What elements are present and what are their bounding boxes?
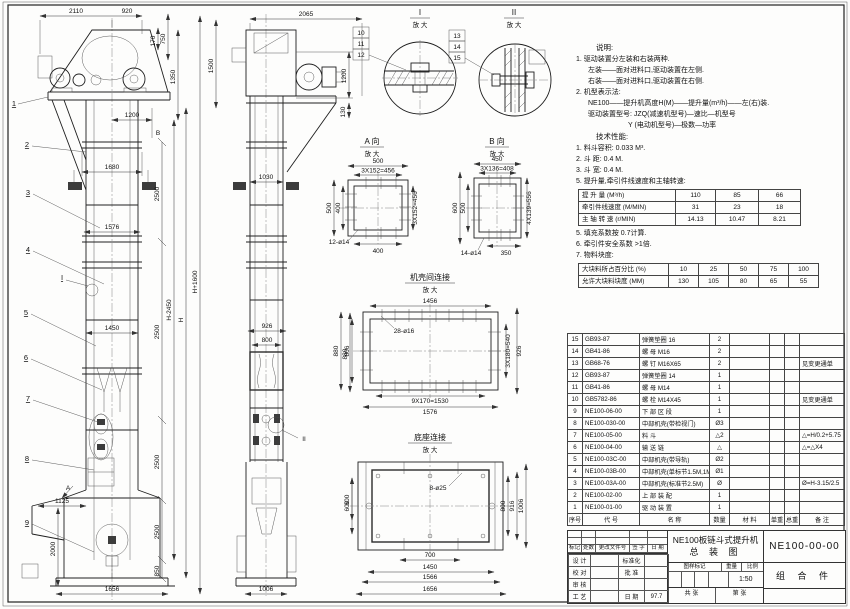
- table-cell: [785, 502, 800, 514]
- view-title: B 向: [489, 136, 505, 146]
- table-cell: [730, 334, 770, 346]
- dimension-label: 1566: [423, 574, 438, 581]
- table-cell: 2: [568, 490, 583, 502]
- balloon-number: 7: [26, 394, 30, 403]
- table-cell: △2: [710, 430, 730, 442]
- table-cell: 中部机壳(带导轨): [640, 454, 710, 466]
- dimension-label: 9X170=1530: [411, 398, 448, 405]
- dimension-label: 800: [500, 500, 507, 511]
- title-block-right: NE100-00-00 组 合 件: [764, 531, 845, 603]
- table-row: 3NE100-03A-00中部机壳(标准节2.5M)ØØ=H-3.15/2.5: [568, 478, 845, 490]
- table-cell: [730, 490, 770, 502]
- table-cell: △=H/0.2+5.75: [800, 430, 845, 442]
- column-header: 单重: [770, 514, 785, 526]
- view-title: 底座连接: [414, 432, 446, 442]
- dimension-label: 916: [509, 500, 516, 511]
- table-row: 2NE100-02-00上 部 装 配1: [568, 490, 845, 502]
- table-cell: Ø3: [710, 418, 730, 430]
- table-cell: 10: [669, 264, 699, 276]
- table-cell: [785, 346, 800, 358]
- sheet-count-label: 共 张: [668, 588, 716, 603]
- dimension-label: 1576: [105, 224, 120, 231]
- dimension-label: 500: [460, 202, 467, 213]
- table-cell: [591, 555, 619, 567]
- table-cell: 2: [710, 358, 730, 370]
- detail-mark-i: I: [61, 273, 63, 282]
- dimension-label: 2500: [154, 524, 161, 539]
- table-cell: [730, 466, 770, 478]
- table-cell: 8.21: [759, 214, 801, 226]
- table-cell: GB93-87: [583, 370, 640, 382]
- side-elevation-view: II 2065 1200 130 1030 926 800 880 600 10…: [232, 11, 362, 596]
- drawing-sheet: 1 2 3 4 5 6 7 8 9 I 2110 920 170 750 135…: [0, 0, 850, 609]
- dimension-label: H: [178, 317, 185, 322]
- table-cell: [785, 418, 800, 430]
- table-cell: [770, 406, 785, 418]
- dimension-label: 1450: [105, 325, 120, 332]
- table-row: 8NE100-030-00中部机壳(带检视门)Ø3: [568, 418, 845, 430]
- table-cell: 14.13: [676, 214, 716, 226]
- dimension-label: 850: [154, 565, 161, 576]
- table-cell: 螺 母 M16: [640, 346, 710, 358]
- scale-value: 1:50: [729, 572, 764, 587]
- table-cell: 14: [568, 346, 583, 358]
- drawing-title-line2: 总 装 图: [668, 546, 763, 559]
- dimension-label: 3X152=456: [361, 168, 395, 175]
- column-header: 材 料: [730, 514, 770, 526]
- casing-joint-view: 机壳间连接 放 大 1456 28-ø16 880 806 3X180=540 …: [333, 272, 523, 416]
- table-cell: [730, 358, 770, 370]
- table-row: 5NE100-03C-00中部机壳(带导轨)Ø2: [568, 454, 845, 466]
- table-cell: [730, 346, 770, 358]
- note-line: Y (电动机型号)—极数—功率: [576, 120, 842, 131]
- note-line: 左装——面对进料口,驱动装置在左侧.: [576, 65, 842, 76]
- table-row: 牵引件线速度 (M/MIN)312318: [579, 202, 801, 214]
- title-block-center: NE100板链斗式提升机 总 装 图 图样标记 重量 比例 1:50 共 张 第…: [668, 531, 764, 603]
- table-cell: 2: [710, 346, 730, 358]
- table-cell: [785, 442, 800, 454]
- table-cell: [645, 555, 669, 567]
- table-cell: [800, 454, 845, 466]
- table-cell: 1: [710, 490, 730, 502]
- table-cell: [730, 442, 770, 454]
- table-cell: [619, 579, 645, 591]
- balloon-number: 15: [453, 55, 461, 62]
- table-cell: 允许大块料块度 (MM): [579, 276, 669, 288]
- detail-view-i: I 放 大 10 11 12: [353, 8, 458, 116]
- table-cell: 105: [699, 276, 729, 288]
- balloon-number: 4: [26, 245, 30, 254]
- table-cell: Ø=H-3.15/2.5: [800, 478, 845, 490]
- balloon-number: 2: [25, 140, 29, 149]
- sheet-number-label: 第 张: [716, 588, 763, 603]
- table-cell: 见变更通单: [800, 394, 845, 406]
- dimension-label: 1656: [105, 586, 120, 593]
- table-cell: 弹簧垫圈 14: [640, 370, 710, 382]
- table-cell: [770, 442, 785, 454]
- parts-list-table: 15GB93-87弹簧垫圈 16214GB41-86螺 母 M16213GB68…: [567, 333, 845, 526]
- table-cell: [785, 430, 800, 442]
- table-cell: [645, 579, 669, 591]
- dimension-label: 2500: [154, 324, 161, 339]
- dimension-label: 400: [373, 248, 384, 255]
- dimension-label: 800: [262, 337, 273, 344]
- table-cell: NE100-03B-00: [583, 466, 640, 478]
- table-cell: Ø: [710, 478, 730, 490]
- table-cell: NE100-03A-00: [583, 478, 640, 490]
- table-cell: 螺 钉 M16X65: [640, 358, 710, 370]
- table-cell: [730, 382, 770, 394]
- table-cell: [800, 502, 845, 514]
- table-cell: [645, 567, 669, 579]
- dimension-label: 1500: [208, 58, 215, 73]
- dimension-label: 1350: [170, 69, 177, 84]
- table-cell: 8: [568, 418, 583, 430]
- table-cell: 130: [669, 276, 699, 288]
- balloon-number: 12: [357, 52, 365, 59]
- table-cell: [770, 334, 785, 346]
- table-cell: [800, 490, 845, 502]
- table-cell: 中部机壳(带检视门): [640, 418, 710, 430]
- dimension-label: 880: [333, 345, 340, 356]
- table-cell: [785, 334, 800, 346]
- table-row: 审 核: [569, 579, 669, 591]
- tech-heading: 技术性能:: [576, 131, 842, 143]
- table-cell: [770, 418, 785, 430]
- table-cell: [785, 394, 800, 406]
- table-cell: NE100-02-00: [583, 490, 640, 502]
- tech-item: 1. 料斗容积: 0.033 M³.: [576, 143, 842, 154]
- table-cell: [800, 418, 845, 430]
- view-title: A 向: [364, 136, 379, 146]
- title-block-revision-area: 标记 处数 更改文件号 签 字 日 期 设 计标准化校 对批 准审 核工 艺日 …: [568, 531, 668, 603]
- view-title: 机壳间连接: [410, 272, 450, 282]
- hole-callout: 8-ø25: [430, 485, 447, 492]
- front-elevation-view: 1 2 3 4 5 6 7 8 9 I 2110 920 170 750 135…: [12, 8, 216, 600]
- balloon-number: 1: [12, 99, 16, 108]
- table-row: 4NE100-03B-00中部机壳(单标节1.5M,1M)Ø1: [568, 466, 845, 478]
- rev-header-cell: 处数: [582, 545, 596, 553]
- table-cell: 7: [568, 430, 583, 442]
- detail-view-ii: II 放 大 13 14 15: [449, 8, 551, 116]
- balloon-number: 10: [357, 30, 365, 37]
- table-cell: 2: [710, 334, 730, 346]
- table-row: 12GB93-87弹簧垫圈 141: [568, 370, 845, 382]
- table-cell: [785, 406, 800, 418]
- table-row: 主 轴 转 速 (r/MIN)14.1310.478.21: [579, 214, 801, 226]
- hole-callout: 12-ø14: [329, 239, 350, 246]
- dimension-label: 3X152=456: [412, 191, 419, 225]
- table-cell: 10.47: [716, 214, 759, 226]
- table-cell: [591, 579, 619, 591]
- balloon-number: 11: [358, 41, 365, 48]
- table-cell: 23: [716, 202, 759, 214]
- dimension-label: 1680: [105, 164, 120, 171]
- dimension-label: 170: [150, 35, 157, 46]
- column-header: 数量: [710, 514, 730, 526]
- table-cell: GB41-86: [583, 382, 640, 394]
- table-cell: 中部机壳(标准节2.5M): [640, 478, 710, 490]
- table-cell: [770, 430, 785, 442]
- dimension-label: 350: [501, 250, 512, 257]
- table-cell: NE100-04-00: [583, 442, 640, 454]
- rev-header-cell: 标记: [568, 545, 582, 553]
- table-cell: 1: [710, 370, 730, 382]
- view-zoom-label: 放 大: [423, 445, 438, 454]
- table-cell: [800, 346, 845, 358]
- table-cell: 97.7: [645, 591, 669, 603]
- table-row: 允许大块料块度 (MM)130105806555: [579, 276, 819, 288]
- dimension-label: 450: [492, 156, 503, 163]
- dimension-label: 1200: [341, 68, 348, 83]
- table-row: 9NE100-06-00下 部 区 段1: [568, 406, 845, 418]
- table-cell: [800, 334, 845, 346]
- balloon-number: 13: [453, 33, 461, 40]
- table-cell: [785, 358, 800, 370]
- table-cell: [591, 591, 619, 603]
- table-cell: [800, 370, 845, 382]
- table-cell: 1: [568, 502, 583, 514]
- table-cell: 100: [789, 264, 819, 276]
- detail-zoom-label: 放 大: [507, 20, 522, 29]
- table-cell: [730, 370, 770, 382]
- dimension-label: 1030: [259, 174, 274, 181]
- table-cell: [800, 466, 845, 478]
- table-cell: 标准化: [619, 555, 645, 567]
- table-cell: [770, 346, 785, 358]
- table-cell: 输 送 链: [640, 442, 710, 454]
- dimension-label: 1456: [423, 298, 438, 305]
- table-cell: [770, 502, 785, 514]
- table-cell: 审 核: [569, 579, 591, 591]
- dimension-label: 926: [262, 323, 273, 330]
- table-cell: [785, 382, 800, 394]
- dimension-label: 1200: [125, 112, 140, 119]
- table-row: 1NE100-01-00驱 动 装 置1: [568, 502, 845, 514]
- table-cell: NE100-03C-00: [583, 454, 640, 466]
- table-cell: [591, 567, 619, 579]
- table-cell: [770, 358, 785, 370]
- table-cell: 10: [568, 394, 583, 406]
- column-header: 备 注: [800, 514, 845, 526]
- table-cell: 驱 动 装 置: [640, 502, 710, 514]
- balloon-number: 6: [24, 353, 28, 362]
- table-cell: 75: [759, 264, 789, 276]
- note-line: 2. 机型表示法:: [576, 87, 842, 98]
- table-row: 提 升 量 (M³/h)1108566: [579, 190, 801, 202]
- detail-zoom-label: 放 大: [413, 20, 428, 29]
- dimension-label: 500: [326, 202, 333, 213]
- table-cell: 12: [568, 370, 583, 382]
- table-cell: [785, 478, 800, 490]
- dimension-label: H-2450: [166, 299, 173, 321]
- rev-header-cell: 签 字: [630, 545, 648, 553]
- dimension-label: 2000: [50, 541, 57, 556]
- table-cell: [785, 466, 800, 478]
- balloon-number: 8: [25, 454, 29, 463]
- dimension-label: 920: [122, 8, 133, 15]
- table-cell: [800, 382, 845, 394]
- tech-item: 5. 提升量,牵引件线速度和主轴转速:: [576, 176, 842, 187]
- dimension-label: 2500: [154, 454, 161, 469]
- balloon-number: 5: [24, 308, 28, 317]
- dimension-label: 1125: [55, 498, 69, 505]
- signature-table: 设 计标准化校 对批 准审 核工 艺日 期97.7: [568, 554, 669, 603]
- table-cell: 1: [710, 382, 730, 394]
- table-cell: 下 部 区 段: [640, 406, 710, 418]
- table-cell: 弹簧垫圈 16: [640, 334, 710, 346]
- dimension-label: 130: [340, 106, 347, 117]
- table-cell: 见变更通单: [800, 358, 845, 370]
- table-cell: GB68-76: [583, 358, 640, 370]
- table-cell: 15: [568, 334, 583, 346]
- table-cell: 6: [568, 442, 583, 454]
- dimension-label: 1576: [423, 409, 438, 416]
- table-cell: [730, 454, 770, 466]
- table-cell: [730, 406, 770, 418]
- table-cell: [785, 454, 800, 466]
- drawing-title: NE100板链斗式提升机 总 装 图: [668, 531, 763, 563]
- table-cell: 批 准: [619, 567, 645, 579]
- table-cell: 110: [676, 190, 716, 202]
- drawing-number: NE100-00-00: [764, 531, 845, 563]
- column-header: 序号: [568, 514, 583, 526]
- part-type-label: 组 合 件: [764, 563, 845, 589]
- table-cell: 66: [759, 190, 801, 202]
- column-header: 总重: [785, 514, 800, 526]
- view-zoom-label: 放 大: [365, 149, 380, 158]
- table-cell: 1: [710, 394, 730, 406]
- table-cell: 工 艺: [569, 591, 591, 603]
- table-cell: [730, 394, 770, 406]
- tech-item: 6. 牵引件安全系数 >1倍.: [576, 239, 842, 250]
- table-cell: GB41-86: [583, 346, 640, 358]
- table-cell: 料 斗: [640, 430, 710, 442]
- dimension-label: 1006: [518, 498, 525, 513]
- note-line: 驱动装置型号: JZQ(减速机型号)—速比—机型号: [576, 109, 842, 120]
- table-cell: [770, 394, 785, 406]
- table-cell: GB5782-86: [583, 394, 640, 406]
- table-row: 设 计标准化: [569, 555, 669, 567]
- view-b-section: B 向 放 大 450 3X136=408 600 500 4X139=556 …: [452, 136, 533, 257]
- section-mark-b: B: [156, 130, 160, 137]
- table-cell: 1: [710, 406, 730, 418]
- table-cell: 日 期: [619, 591, 645, 603]
- table-cell: 9: [568, 406, 583, 418]
- table-cell: [730, 418, 770, 430]
- table-cell: NE100-06-00: [583, 406, 640, 418]
- speed-spec-table: 提 升 量 (M³/h)1108566牵引件线速度 (M/MIN)312318主…: [578, 189, 801, 226]
- table-cell: [785, 370, 800, 382]
- lump-spec-table: 大块料所占百分比 (%)10255075100允许大块料块度 (MM)13010…: [578, 263, 819, 288]
- table-cell: 主 轴 转 速 (r/MIN): [579, 214, 676, 226]
- table-cell: 提 升 量 (M³/h): [579, 190, 676, 202]
- table-cell: 3: [568, 478, 583, 490]
- table-cell: 上 部 装 配: [640, 490, 710, 502]
- title-block: 标记 处数 更改文件号 签 字 日 期 设 计标准化校 对批 准审 核工 艺日 …: [567, 530, 846, 604]
- note-line: NE100——提升机高度H(M)——提升量(m³/h)——左(右)装.: [576, 98, 842, 109]
- dimension-label: 2500: [154, 186, 161, 201]
- table-cell: [770, 490, 785, 502]
- table-row: 6NE100-04-00输 送 链△△=△X4: [568, 442, 845, 454]
- view-zoom-label: 放 大: [423, 285, 438, 294]
- detail-title: I: [419, 8, 421, 17]
- table-row: 7NE100-05-00料 斗△2△=H/0.2+5.75: [568, 430, 845, 442]
- table-row: 工 艺日 期97.7: [569, 591, 669, 603]
- table-cell: 25: [699, 264, 729, 276]
- column-header: 名 称: [640, 514, 710, 526]
- dimension-label: 4X139=556: [526, 191, 533, 225]
- tech-item: 7. 物料块度:: [576, 250, 842, 261]
- table-cell: △=△X4: [800, 442, 845, 454]
- table-cell: 65: [759, 276, 789, 288]
- detail-mark-ii: II: [302, 436, 306, 443]
- table-cell: [730, 478, 770, 490]
- table-cell: 13: [568, 358, 583, 370]
- table-cell: NE100-05-00: [583, 430, 640, 442]
- table-cell: 中部机壳(单标节1.5M,1M): [640, 466, 710, 478]
- table-row: 14GB41-86螺 母 M162: [568, 346, 845, 358]
- table-cell: [770, 466, 785, 478]
- balloon-number: 14: [453, 44, 461, 51]
- dimension-label: 1006: [259, 586, 274, 593]
- table-cell: 牵引件线速度 (M/MIN): [579, 202, 676, 214]
- table-cell: 4: [568, 466, 583, 478]
- table-cell: GB93-87: [583, 334, 640, 346]
- table-cell: 11: [568, 382, 583, 394]
- table-row: 13GB68-76螺 钉 M16X652见变更通单: [568, 358, 845, 370]
- table-cell: NE100-01-00: [583, 502, 640, 514]
- dimension-label: 750: [160, 33, 167, 44]
- table-row: 大块料所占百分比 (%)10255075100: [579, 264, 819, 276]
- table-cell: 螺 母 M14: [640, 382, 710, 394]
- dimension-label: 600: [344, 500, 351, 511]
- view-a-section: A 向 放 大 500 3X152=456 500 400 3X152=456 …: [326, 136, 419, 255]
- table-cell: [770, 382, 785, 394]
- table-cell: [730, 430, 770, 442]
- dimension-label: 600: [452, 202, 459, 213]
- dimension-label: 1450: [423, 564, 438, 571]
- tech-item: 2. 斗 距: 0.4 M.: [576, 154, 842, 165]
- parts-list-header-row: 序号 代 号 名 称 数量 材 料 单重 总重 备 注: [568, 514, 845, 526]
- weight-label: 重量: [722, 563, 742, 571]
- table-row: 11GB41-86螺 母 M141: [568, 382, 845, 394]
- table-cell: 校 对: [569, 567, 591, 579]
- table-row: 校 对批 准: [569, 567, 669, 579]
- table-cell: △: [710, 442, 730, 454]
- dimension-label: 500: [373, 158, 384, 165]
- note-line: 右装——面对进料口,驱动装置在右侧.: [576, 76, 842, 87]
- table-cell: Ø1: [710, 466, 730, 478]
- table-cell: 设 计: [569, 555, 591, 567]
- note-line: 1. 驱动装置分左装和右装两种.: [576, 54, 842, 65]
- table-cell: [730, 502, 770, 514]
- balloon-number: 9: [25, 518, 29, 527]
- column-header: 代 号: [583, 514, 640, 526]
- dimension-label: 700: [425, 552, 436, 559]
- table-cell: [785, 490, 800, 502]
- dimension-label: 806: [344, 345, 351, 356]
- table-cell: 螺 栓 M14X45: [640, 394, 710, 406]
- table-cell: 50: [729, 264, 759, 276]
- table-cell: 1: [710, 502, 730, 514]
- notes-block: 说明: 1. 驱动装置分左装和右装两种. 左装——面对进料口,驱动装置在左侧. …: [576, 42, 842, 290]
- table-cell: [770, 370, 785, 382]
- table-cell: 85: [716, 190, 759, 202]
- table-cell: Ø2: [710, 454, 730, 466]
- table-cell: 31: [676, 202, 716, 214]
- stamp-label: 图样标记: [668, 563, 722, 571]
